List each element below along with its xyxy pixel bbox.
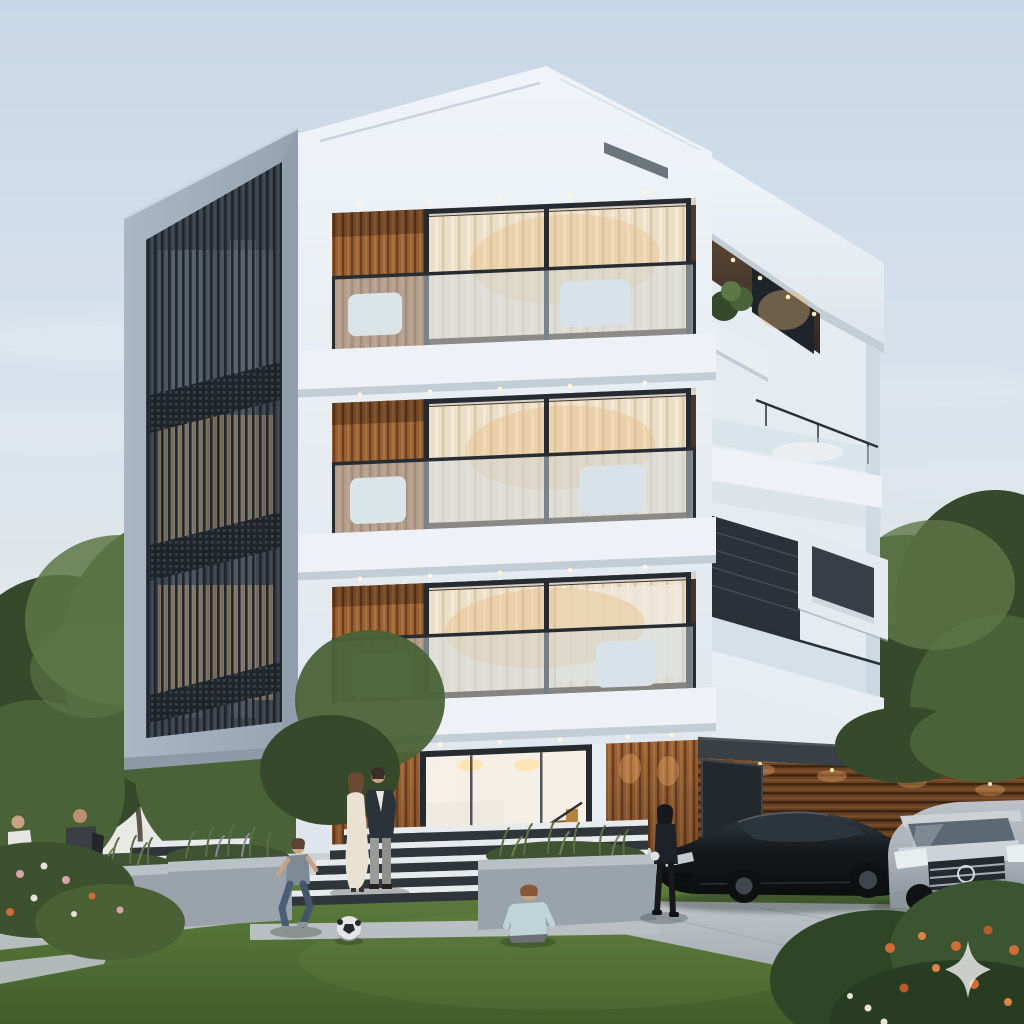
louver-lines [146, 162, 282, 738]
trousers [370, 838, 379, 886]
wheel-rim [859, 871, 877, 889]
car-grille [660, 873, 694, 883]
shoe [281, 926, 292, 931]
wheel-rim [736, 878, 753, 895]
balcony-floor-3 [332, 378, 696, 533]
head [73, 809, 87, 823]
building-left-louver-box [124, 128, 298, 770]
shoe [669, 912, 679, 917]
shoe [652, 910, 662, 915]
hair [371, 768, 385, 779]
waist-bag [651, 852, 660, 861]
shadow [640, 912, 688, 924]
headlight [1006, 844, 1024, 862]
bed-foliage [35, 884, 185, 960]
leg [657, 864, 660, 912]
shoe [297, 922, 308, 927]
trousers [382, 838, 391, 886]
leg [671, 864, 673, 914]
architectural-render-scene [0, 0, 1024, 1024]
interior-glow [758, 290, 810, 330]
head [12, 816, 25, 829]
frame-return [282, 128, 298, 756]
soccer-ball [335, 916, 363, 945]
hair [291, 838, 305, 849]
shadow [270, 926, 322, 938]
balcony-floor-4 [332, 187, 696, 349]
render-canvas [0, 0, 1024, 1024]
